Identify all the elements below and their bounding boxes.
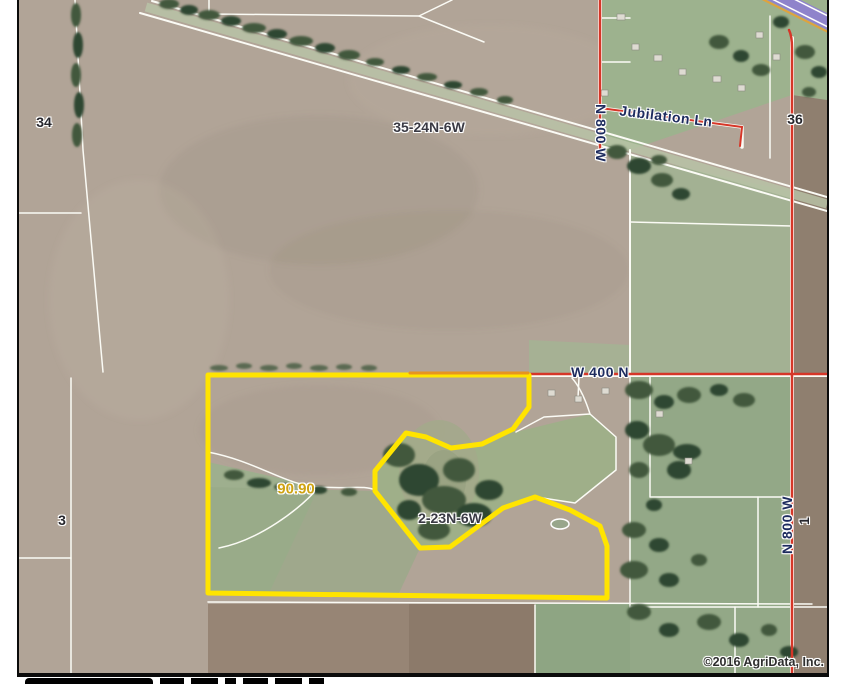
section-number-36: 36 [787, 111, 803, 127]
section-number-34: 34 [36, 114, 52, 130]
township-label-35-24n-6w: 35-24N-6W [393, 119, 465, 135]
road-label-n800w-right: N 800 W [779, 496, 795, 554]
aerial-imagery [19, 0, 827, 673]
copyright-notice: ©2016 AgriData, Inc. [703, 655, 824, 669]
section-number-3: 3 [58, 512, 66, 528]
plat-map-page: 34 35-24N-6W N 800 W Jubilation Ln 36 W … [0, 0, 845, 684]
road-label-w400n: W 400 N [571, 364, 629, 380]
township-label-2-23n-6w: 2-23N-6W [418, 510, 482, 526]
pond [551, 519, 569, 529]
section-number-1: 1 [796, 517, 812, 525]
aerial-map: 34 35-24N-6W N 800 W Jubilation Ln 36 W … [17, 0, 829, 677]
road-label-n800w-top: N 800 W [593, 104, 609, 162]
cropped-logo [25, 678, 324, 684]
logo-mark-icon [25, 678, 153, 684]
parcel-acreage-label: 90.90 [277, 481, 315, 498]
